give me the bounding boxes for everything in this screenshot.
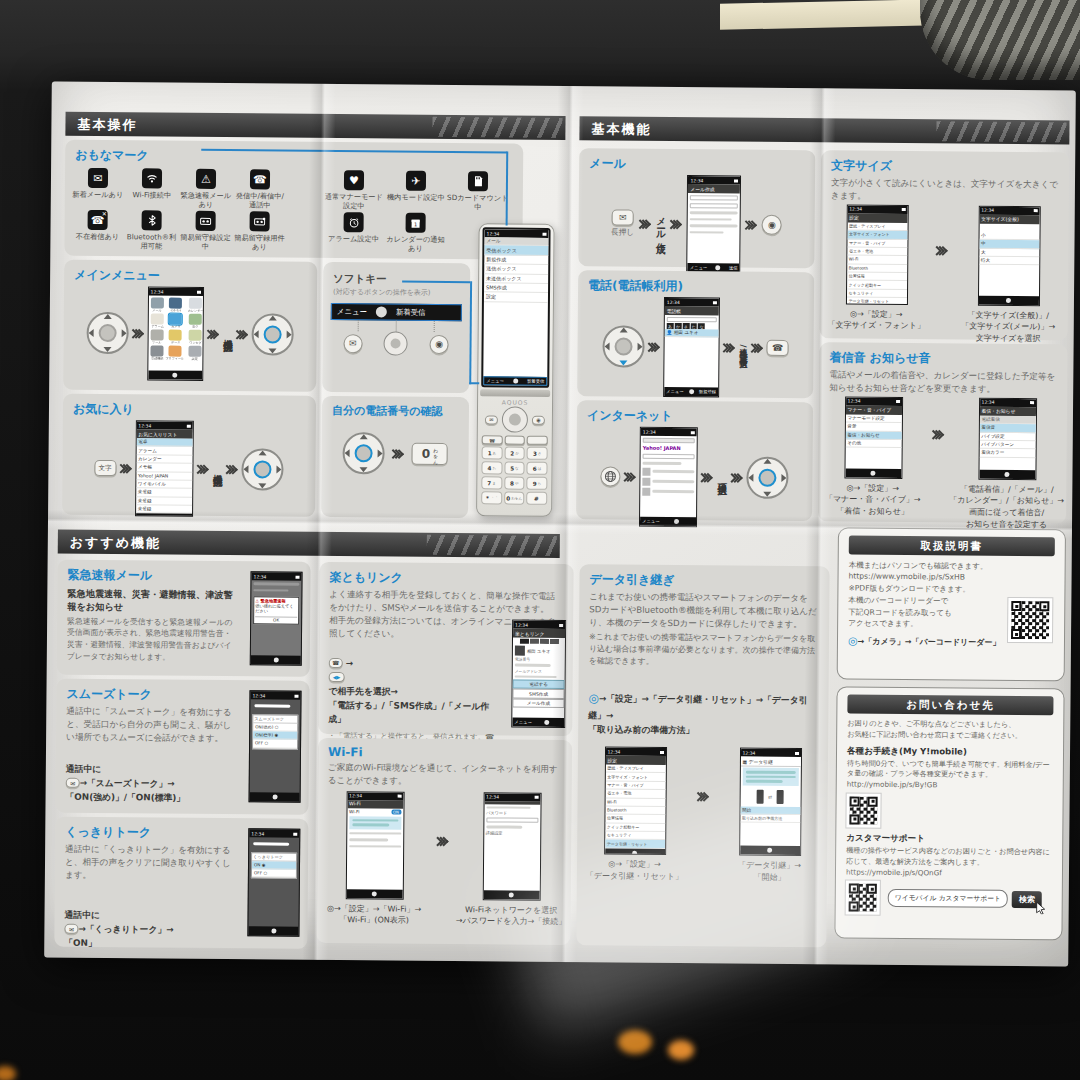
manual-title: 取扱説明書 (849, 536, 1055, 557)
chevron-icon (640, 220, 649, 227)
browser-screen: 12:34 Yahoo! JAPAN メニュー (639, 427, 698, 528)
mark-label: アラーム設定中 (328, 235, 379, 244)
missed-call-icon: ☎✕ (88, 210, 108, 230)
phone-screen: 12:34 メール 受信ボックス 新規作成 送信ボックス 未送信ボックス SMS… (481, 227, 550, 388)
mark-item: 簡易留守録設定中 (178, 211, 232, 252)
caption: ◎→「設定」→ 「マナー・音・バイブ」→ 「着信・お知らせ」 (825, 482, 921, 518)
marks-section: おもなマーク ✉ 新着メールあり Wi-Fi接続中 ⚠ 緊急速報メールあり ☎ … (64, 140, 523, 260)
chevron-icon (133, 330, 142, 337)
mark-item: ✉ 新着メールあり (71, 168, 125, 200)
phone-softkey-bar: メニュー 新着受信 (483, 376, 547, 386)
my-number-section: 自分の電話番号の確認 0 わをん (321, 396, 469, 518)
option-row: OFF ○ (252, 869, 296, 878)
mail-title: メール (589, 155, 805, 174)
app-tile-mail (151, 297, 164, 308)
bluetooth-icon (142, 211, 162, 231)
ringtone-description: 電話やメールの着信音や、カレンダーに登録した予定等を知らせるお知らせ音などを変更… (829, 368, 1057, 396)
manner-screen: 12:34 マナー・音・バイブ マナーモード設定 音量 着信・お知らせ その他 (844, 396, 903, 479)
digit-key: 7ま (481, 476, 502, 489)
chevron-icon (698, 793, 707, 800)
camera-key-icon: ◉ (532, 415, 545, 424)
new-mail-icon: ✉ (88, 168, 108, 188)
chevron-icon (238, 331, 247, 338)
mark-item: ♥ 通常マナーモード設定中 (323, 170, 385, 211)
mark-item: ☎✕ 不在着信あり (70, 210, 124, 242)
dpad-ok-icon (252, 313, 294, 355)
data-transfer-body: これまでお使いの携帯電話やスマートフォンのデータをSDカードやBluetooth… (589, 590, 819, 631)
camera-key-icon: ◉ (430, 334, 449, 353)
header-label: おすすめ機能 (70, 535, 161, 551)
mark-label: 緊急速報メールあり (179, 192, 233, 210)
tel-section: 電話(電話帳利用) 12:34 電話帳 あ か さ た な 👤 相田 ユキオ (577, 270, 814, 398)
option-row: OFF ○ (253, 740, 297, 749)
chevron-icon (625, 473, 634, 480)
emergency-mail-section: 緊急速報メール 緊急地震速報、災害・避難情報、津波警報をお知らせ 緊急速報メール… (57, 560, 311, 677)
internet-title: インターネット (587, 407, 803, 426)
customer-support-qr-code (846, 881, 880, 915)
desk-object-corrugated-tube (920, 0, 1080, 80)
phone-keypad: ☎ 1あ 2か 3さ 4た 5な 6は 7ま 8や 9ら *゛゜ 0わをん # (480, 433, 549, 507)
wifi-icon (142, 168, 162, 188)
emergency-alert-icon: ⚠ (196, 169, 216, 189)
connector-line (469, 281, 471, 384)
cursor-icon (1036, 902, 1046, 914)
chevron-icon (732, 474, 741, 481)
mark-label: 簡易留守録用件あり (232, 234, 286, 252)
alert-message: 強い揺れに備えてください (255, 603, 297, 614)
dpad-ok-icon (242, 448, 284, 490)
my-ymobile-title: 各種お手続き(My Y!mobile) (847, 745, 1053, 759)
mark-label: 通常マナーモード設定中 (323, 193, 385, 211)
dpad-ok-icon (746, 457, 788, 499)
chevron-icon (228, 466, 237, 473)
app-tile-internet (169, 298, 182, 309)
app-tile-oneseg (189, 330, 202, 341)
menu-item: SMS作成 (484, 283, 548, 293)
clear-talk-body: 通話中に「くっきりトーク」を有効にすると、相手の声をクリアに聞き取りやすくします… (65, 843, 235, 883)
call-key-icon: ☎ (482, 435, 503, 444)
smooth-talk-screen: 12:34 スムーズトーク ON(強め) ○ ON(標準) ◉ OFF ○ (249, 690, 302, 802)
rakutomo-link-section: 楽ともリンク よく連絡する相手先を登録しておくと、簡単な操作で電話をかけたり、S… (318, 562, 573, 736)
favorites-title: お気に入り (73, 401, 306, 420)
app-tile-calendar (189, 298, 202, 309)
mail-key-icon: ✉ (612, 209, 634, 225)
mark-item: SDカードマウント中 (447, 171, 509, 212)
app-tile-alarm (151, 313, 164, 324)
header-label: 基本操作 (77, 117, 137, 133)
mark-item: アラーム設定中 (322, 212, 384, 244)
menu-item: 未送信ボックス (484, 274, 548, 284)
rakutomo-title: 楽ともリンク (329, 569, 563, 588)
softkey-title: ソフトキー (333, 272, 460, 287)
answer-memo-message-icon (250, 212, 270, 232)
smooth-talk-step: 通話中に ✉→「スムーズトーク」→ 「ON(強め)」/「ON(標準)」 (66, 747, 241, 805)
clear-talk-step: 通話中に ✉→「くっきりトーク」→ 「ON」 (64, 893, 239, 951)
softkey-note: (対応するボタンの操作を表示) (333, 287, 460, 298)
contact-section: お問い合わせ先 お困りのときや、ご不明な点などございましたら、 お気軽に下記お問… (834, 686, 1064, 940)
ringtone-section: 着信音 お知らせ音 電話やメールの着信音や、カレンダーに登録した予定等を知らせる… (818, 342, 1068, 523)
clear-talk-section: くっきりトーク 通話中に「くっきりトーク」を有効にすると、相手の声をクリアに聞き… (54, 817, 308, 949)
svg-text:1: 1 (414, 221, 417, 227)
digit-key: 6は (527, 462, 548, 475)
wifi-body: ご家庭のWi-Fi環境などを通じて、インターネットを利用することができます。 (328, 761, 562, 789)
chevron-icon (438, 838, 447, 845)
mail-key-icon: ✉ (343, 334, 362, 353)
menu-item: 受信ボックス (484, 246, 548, 256)
manual-body1: 本機またはパソコンでも確認できます。 https://www.ymobile.j… (848, 560, 1054, 596)
data-transfer-section: データ引き継ぎ これまでお使いの携帯電話やスマートフォンのデータをSDカードやB… (576, 564, 829, 947)
contact-intro: お困りのときや、ご不明な点などございましたら、 お気軽に下記お問い合わせ窓口まで… (847, 719, 1053, 742)
mark-label: Wi-Fi接続中 (132, 191, 171, 200)
mail-compose-screen: 12:34 メール作成 メニュー送信 (687, 175, 742, 273)
mark-label: SDカードマウント中 (447, 194, 509, 212)
main-menu-screen: 12:34 メール ｲﾝﾀｰﾈｯﾄ カレンダー アラーム カメラ 電卓 ツール … (147, 286, 204, 380)
chevron-icon (933, 431, 942, 438)
step-label-compose-mail: メール作成 (655, 211, 666, 238)
customer-support-body: 機種の操作やサービス内容などのお困りごと・お問合せ内容に応じて、最適な解決方法を… (846, 845, 1052, 879)
contact-entry: 👤 相田 ユキオ (665, 329, 719, 338)
feature-phone-illustration: 12:34 メール 受信ボックス 新規作成 送信ボックス 未送信ボックス SMS… (476, 223, 555, 517)
phone-hinge (480, 389, 550, 397)
mail-key-icon: ✉ (64, 924, 78, 934)
digit-key: *゛゜ (481, 491, 502, 504)
softkey-center-icon (376, 306, 387, 317)
zero-key-icon: 0 わをん (412, 443, 448, 465)
chevron-icon (724, 344, 733, 351)
internet-section: インターネット 12:34 Yahoo! JAPAN メニュー 項目選択 (576, 400, 813, 521)
mark-item: ⚠ 緊急速報メールあり (179, 169, 233, 210)
globe-key-icon (600, 466, 620, 486)
desk-orange-spot (668, 1040, 694, 1060)
emergency-bold-text: 緊急地震速報、災害・避難情報、津波警報をお知らせ (67, 587, 235, 615)
manual-qr-code (1008, 598, 1052, 642)
chevron-icon (672, 220, 681, 227)
sd-card-icon (468, 171, 488, 191)
dpad-ok-icon (342, 432, 384, 474)
manual-body2: 本機のバーコードリーダーで 下記QRコードを読み取っても アクセスできます。 (848, 595, 978, 630)
app-tile-tools (151, 329, 164, 340)
chevron-icon (121, 465, 130, 472)
alarm-icon (344, 212, 364, 232)
mail-key-icon: ✉ (485, 415, 498, 424)
status-time: 12:34 (151, 289, 164, 294)
font-size-section: 文字サイズ 文字が小さくて読みにくいときは、文字サイズを大きくできます。 12:… (820, 150, 1070, 340)
customer-support-title: カスタマーサポート (846, 832, 1052, 846)
digit-key: 1あ (482, 446, 503, 459)
airplane-mode-icon: ✈ (406, 171, 426, 191)
data-transfer-screen: 12:34 ▦ データ引継 ⇄ 開始 取り込み前の準備方法 (739, 748, 802, 857)
mark-item: Bluetooth®利用可能 (124, 210, 178, 251)
dpad-icon (86, 312, 128, 354)
digit-key: 9ら (527, 477, 548, 490)
favorites-key-icon: 文字 (94, 460, 116, 476)
screen-title: 電話帳 (665, 306, 719, 315)
font-size-title: 文字サイズ (831, 157, 1059, 176)
header-label: 基本機能 (591, 121, 651, 137)
caption: Wi-Fiネットワークを選択 →パスワードを入力→「接続」 (456, 904, 567, 928)
answer-memo-icon (196, 211, 216, 231)
data-transfer-note: ※これまでお使いの携帯電話やスマートフォンからデータを取り込む場合は事前準備が必… (589, 631, 819, 669)
wifi-password-screen: 12:34 パスワード 詳細設定 (482, 792, 541, 901)
center-key-dot (513, 379, 518, 384)
my-number-title: 自分の電話番号の確認 (332, 403, 459, 419)
smooth-talk-body: 通話中に「スムーズトーク」を有効にすると、受話口から自分の声も聞こえ、騒がしい場… (66, 705, 236, 745)
desk-orange-spot (0, 1066, 16, 1080)
menu-item: 設定 (484, 293, 548, 303)
mark-item: ☎ 発信中/着信中/通話中 (233, 169, 287, 210)
action-button: 電話する (513, 680, 565, 690)
section-header-recommended: おすすめ機能 (58, 530, 560, 558)
action-button: SMS作成 (512, 689, 564, 699)
screen-title: メール作成 (688, 184, 740, 193)
app-tile-phone (150, 345, 163, 356)
tel-title: 電話(電話帳利用) (588, 277, 804, 296)
caption: ◎→「設定」→ 「データ引継・リセット」 (586, 858, 683, 882)
caption: 「電話着信」/「メール」/ 「カレンダー」/「お知らせ」→ 画面に従って着信音/… (949, 483, 1064, 530)
emergency-body: 緊急速報メールを受信すると緊急速報メールの受信画面が表示され、緊急地震速報用警告… (67, 615, 237, 663)
softkey-bar: メニュー 新着受信 (331, 303, 462, 321)
photo-scene: 基本操作 基本機能 おすすめ機能 おもなマーク ✉ 新着メールあり Wi-Fi接… (0, 0, 1080, 1080)
mark-item: 1 カレンダーの通知あり (384, 213, 446, 254)
digit-key: 2か (504, 447, 525, 460)
call-icon: ☎ (250, 169, 270, 189)
dpad-left-right-icon: ◀▶ (329, 672, 345, 682)
digit-key: 5な (504, 462, 525, 475)
menu-item: 送信ボックス (484, 264, 548, 274)
chevron-icon (753, 344, 762, 351)
connector-line (469, 382, 479, 384)
end-key-icon (527, 436, 548, 445)
caption: ◎→「設定」→ 「文字サイズ・フォント」 (828, 308, 926, 332)
rakutomo-screen: 12:34 楽ともリンク 相田 ユキオ 電話番号 メールアドレス 電話する SM… (511, 620, 566, 728)
settings-screen: 12:34 設定 壁紙・ディスプレイ 文字サイズ・フォント マナー・音・バイブ … (845, 204, 908, 305)
notification-sound-screen: 12:34 着信・お知らせ 電話着信 着信音 バイブ設定 バイブパターン 着信カ… (978, 397, 1037, 480)
old-phone-glyph (757, 789, 764, 803)
call-key-icon: ☎ (329, 658, 343, 668)
app-tile-settings (189, 346, 202, 357)
ok-button-label: OK (255, 616, 297, 622)
calendar-notification-icon: 1 (406, 213, 426, 233)
app-tile-profile (169, 346, 182, 357)
chevron-icon (702, 474, 711, 481)
chevron-icon (208, 330, 217, 337)
favorites-section: お気に入り 文字 12:34 お気に入りリスト 電卓 アラーム カレンダー メモ… (62, 394, 316, 517)
digit-key: # (526, 492, 547, 505)
clear-key-icon (504, 436, 525, 445)
dpad-mini-icon (384, 331, 408, 355)
mark-label: 簡易留守録設定中 (178, 234, 232, 252)
chevron-icon (394, 450, 403, 457)
prep-row: 取り込み前の準備方法 (740, 815, 800, 824)
data-transfer-step: ◎→「設定」→「データ引継・リセット」→「データ引継」→ 「取り込み前の準備方法… (588, 675, 819, 738)
caption: 「文字サイズ(全般)」/ 「文字サイズ(メール)」→ 文字サイズを選択 (961, 309, 1055, 345)
app-grid: メール ｲﾝﾀｰﾈｯﾄ カレンダー アラーム カメラ 電卓 ツール データ ワン… (148, 295, 203, 362)
contact-title: お問い合わせ先 (847, 695, 1053, 716)
emergency-alert-screen: 12:34 ⚠ 緊急地震速報 強い揺れに備えてください OK (250, 571, 303, 665)
mark-label: カレンダーの通知あり (384, 236, 446, 254)
mark-item: ✈ 機内モード設定中 (385, 170, 447, 202)
long-press-label: 長押し (611, 227, 634, 237)
mail-key-icon: ✉ (66, 778, 80, 788)
screen-title: お気に入りリスト (136, 429, 192, 438)
softkey-menu-label: メニュー (332, 307, 372, 317)
dpad-icon (502, 406, 528, 432)
mail-section: メール ✉ 長押し メール作成 12:34 メール作成 メニュー送信 ◉ (578, 148, 815, 268)
data-transfer-title: データ引き継ぎ (589, 571, 819, 590)
search-button: 検索 (1012, 891, 1042, 908)
wifi-section: Wi-Fi ご家庭のWi-Fi環境などを通じて、インターネットを利用することがで… (316, 738, 572, 945)
desk-orange-spot (618, 1030, 652, 1054)
digit-key: 0わをん (504, 492, 525, 505)
softkey-right-label: 新着受信 (391, 307, 431, 317)
mark-item: 簡易留守録用件あり (232, 211, 286, 252)
avatar (515, 646, 525, 656)
mark-label: 発信中/着信中/通話中 (233, 192, 287, 210)
ok-key-icon: ◎ (588, 691, 599, 705)
chevron-icon (198, 465, 207, 472)
manual-section: 取扱説明書 本機またはパソコンでも確認できます。 https://www.ymo… (837, 527, 1066, 681)
manner-mode-icon: ♥ (344, 170, 364, 190)
main-menu-section: メインメニュー 12:34 メール ｲﾝﾀｰﾈｯﾄ カレンダー アラーム カメラ… (63, 260, 317, 392)
font-size-select-screen: 12:34 文字サイズ(全般) 小 中 大 特大 (977, 205, 1040, 306)
app-tile-calculator (189, 314, 202, 325)
leaflet-paper: 基本操作 基本機能 おすすめ機能 おもなマーク ✉ 新着メールあり Wi-Fi接… (44, 82, 1076, 967)
digit-key: 8や (504, 477, 525, 490)
section-header-basic-operations: 基本操作 (65, 112, 565, 140)
favorites-screen: 12:34 お気に入りリスト 電卓 アラーム カレンダー メモ帳 Yahoo! … (135, 420, 194, 517)
search-box-illustration: ワイモバイル カスタマーサポート 検索 (888, 889, 1042, 908)
phonebook-screen: 12:34 電話帳 あ か さ た な 👤 相田 ユキオ メニュー新規登録 (663, 297, 720, 397)
caption: 「データ引継」→ 「開始」 (738, 860, 801, 884)
screen-title: ▦ データ引継 (740, 757, 800, 768)
caption: ◎→「設定」→「Wi-Fi」→ 「Wi-Fi」(ON表示) (327, 903, 421, 927)
menu-item: 新規作成 (484, 255, 548, 265)
search-input: ワイモバイル カスタマーサポート (888, 889, 1008, 908)
marks-title: おもなマーク (75, 147, 149, 165)
ringtone-title: 着信音 お知らせ音 (829, 349, 1057, 368)
my-ymobile-qr-code (846, 793, 880, 827)
digit-key: 4た (481, 461, 502, 474)
clear-talk-screen: 12:34 くっきりトーク ON ◉ OFF ○ (247, 828, 300, 936)
app-tile-camera (169, 314, 182, 325)
app-tile-data (169, 330, 182, 341)
rakutomo-step: ☎ → ◀▶ で相手先を選択→ 「電話する」/「SMS作成」/「メール作成」 (328, 642, 499, 728)
font-size-description: 文字が小さくて読みにくいときは、文字サイズを大きくできます。 (831, 176, 1059, 204)
action-button: メール作成 (512, 698, 564, 708)
wifi-title: Wi-Fi (328, 745, 562, 761)
yahoo-logo: Yahoo! JAPAN (641, 444, 697, 452)
wifi-settings-screen: 12:34 Wi-Fi Wi-Fi ON (345, 791, 404, 900)
my-ymobile-body: 待ち時間0分で、いつでも簡単手続き可能です。利用料金/データ量の確認・プラン等各… (847, 758, 1053, 792)
ok-key-icon: ◎ (848, 635, 858, 648)
chevron-icon (649, 343, 658, 350)
dpad-down-icon (602, 325, 644, 367)
section-header-basic-functions: 基本機能 (579, 116, 1069, 144)
send-key-icon: ◉ (762, 215, 782, 235)
main-menu-title: メインメニュー (74, 267, 307, 286)
mark-label: 不在着信あり (76, 233, 120, 242)
smooth-talk-section: スムーズトーク 通話中に「スムーズトーク」を有効にすると、受話口から自分の声も聞… (55, 679, 309, 815)
mark-label: 新着メールあり (72, 191, 123, 200)
mark-label: Bluetooth®利用可能 (124, 233, 178, 251)
chevron-icon (937, 247, 946, 254)
settings-screen: 12:34 設定 壁紙・ディスプレイ 文字サイズ・フォント マナー・音・バイブ … (604, 746, 667, 855)
mark-label: 機内モード設定中 (387, 193, 445, 202)
chevron-icon (747, 221, 756, 228)
digit-key: 3さ (527, 447, 548, 460)
new-phone-glyph (776, 789, 783, 803)
call-key-icon: ☎ (767, 340, 789, 356)
mark-item: Wi-Fi接続中 (125, 168, 179, 200)
